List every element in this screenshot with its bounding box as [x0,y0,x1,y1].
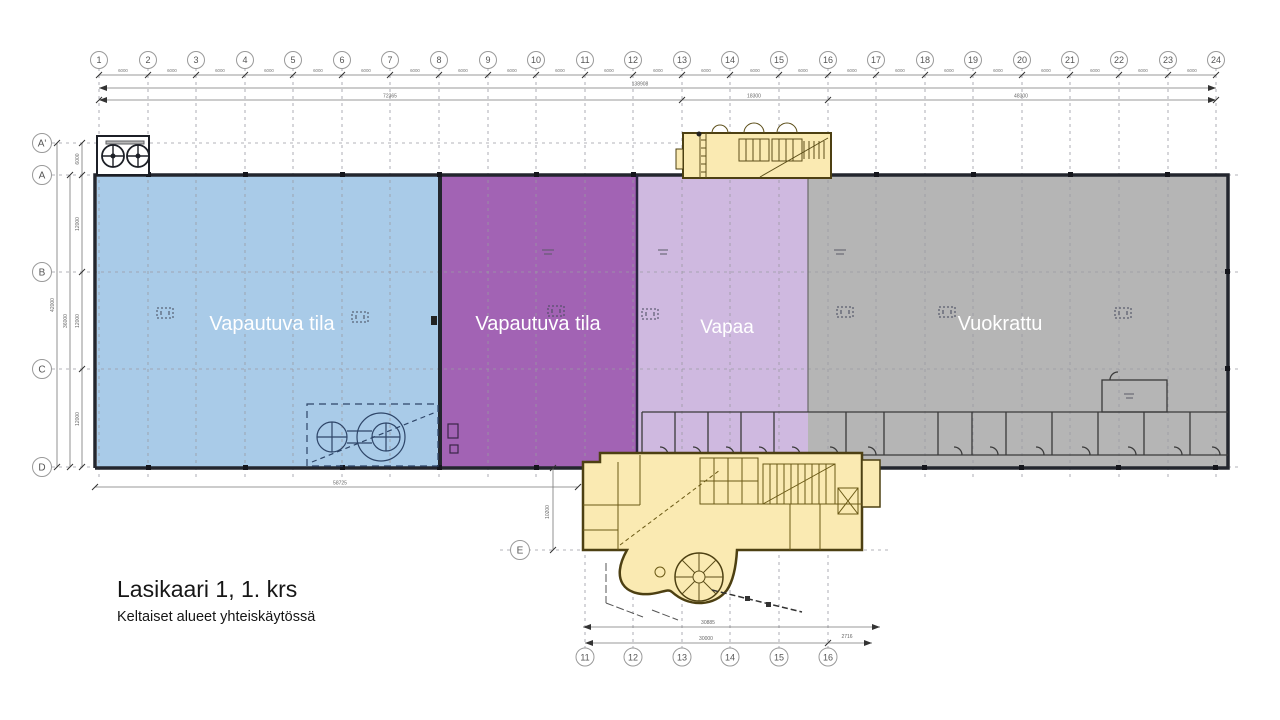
page-subtitle: Keltaiset alueet yhteiskäytössä [117,609,316,625]
dim-aprime-a: 6000 [75,153,81,164]
bay-dim: 6000 [1187,68,1197,73]
dim-bottom-left: 58725 [333,481,347,487]
bay-dim: 6000 [458,68,468,73]
grid-col: 2 [145,55,150,65]
grid-col-bottom: 15 [774,653,784,663]
label-free: Vapaa [700,317,754,338]
dim-entrance-grid: 30000 [699,636,713,642]
mid-total-dim: 18300 [747,94,761,100]
reference-dot [697,132,702,137]
bay-dim: 6000 [653,68,663,73]
grid-col: 19 [968,55,978,65]
dim-b-c: 12000 [75,314,81,328]
grid-row: B [39,268,46,279]
bay-dim: 6000 [847,68,857,73]
bay-dim: 6000 [1041,68,1051,73]
door-mark [431,316,437,325]
bay-dim: 6000 [118,68,128,73]
bay-dim: 6000 [750,68,760,73]
grid-col: 12 [628,55,638,65]
upper-common-building [676,123,831,178]
dim-c-d: 12000 [75,412,81,426]
bay-dim: 6000 [895,68,905,73]
grid-col-bottom: 12 [628,653,638,663]
grid-col: 22 [1114,55,1124,65]
bay-dim: 6000 [555,68,565,73]
grid-col: 17 [871,55,881,65]
grid-bubbles-top: 1 2 3 4 5 6 7 8 9 10 11 12 13 14 15 16 1… [91,52,1225,69]
page-title: Lasikaari 1, 1. krs [117,576,297,602]
grid-col: 20 [1017,55,1027,65]
grid-col: 11 [580,55,589,65]
grid-col: 15 [774,55,784,65]
dim-entrance-extra: 2716 [841,634,852,640]
grid-col: 21 [1065,55,1075,65]
grid-col: 16 [823,55,833,65]
grid-col: 4 [242,55,247,65]
bay-dim: 6000 [604,68,614,73]
bay-dim: 6000 [313,68,323,73]
grid-col: 10 [531,55,541,65]
grid-bubbles-bottom: 11 12 13 14 15 16 [576,648,837,666]
bay-dim: 6000 [167,68,177,73]
grid-col-bottom: 13 [677,653,687,663]
bay-dim: 6000 [361,68,371,73]
bay-dim: 6000 [993,68,1003,73]
grid-row: D [38,463,45,474]
grid-row: A' [38,139,47,150]
grid-col: 9 [485,55,490,65]
bay-dim: 6000 [264,68,274,73]
total-width-dim: 138908 [632,82,649,88]
bay-dim: 6000 [507,68,517,73]
grid-col: 24 [1211,55,1221,65]
dim-a-b: 12000 [75,217,81,231]
grid-col: 3 [193,55,198,65]
grid-col: 1 [96,55,101,65]
spiral-stair [675,553,723,601]
dim-a-d: 36000 [63,314,69,328]
grid-col: 18 [920,55,930,65]
title-block: Lasikaari 1, 1. krs Keltaiset alueet yht… [117,576,316,625]
bay-dim: 6000 [701,68,711,73]
label-releasing-purple: Vapautuva tila [475,313,601,335]
grid-row: C [38,365,45,376]
ventilation-room [97,136,149,175]
grid-col: 23 [1163,55,1173,65]
grid-col-bottom: 16 [823,653,833,663]
dim-entrance-width: 30885 [701,620,715,626]
floorplan-page: 6000 6000 6000 6000 6000 6000 6000 6000 … [0,0,1280,720]
right-total-dim: 48300 [1014,94,1028,100]
grid-row: E [517,546,524,557]
bay-dim: 6000 [215,68,225,73]
grid-col: 14 [725,55,735,65]
grid-col-bottom: 11 [580,653,589,663]
grid-col: 5 [290,55,295,65]
bay-dimension-labels: 6000 6000 6000 6000 6000 6000 6000 6000 … [118,68,1197,73]
grid-col: 6 [339,55,344,65]
dim-d-e: 10200 [545,505,551,519]
grid-row: A [39,171,46,182]
grid-col: 8 [436,55,441,65]
bay-dim: 6000 [944,68,954,73]
floorplan-drawing: 6000 6000 6000 6000 6000 6000 6000 6000 … [0,0,1280,720]
grid-col: 13 [677,55,687,65]
left-total-dim: 72365 [383,94,397,100]
lower-common-building [583,453,880,620]
area-free-lavender [637,175,808,455]
grid-col: 7 [387,55,392,65]
bay-dim: 6000 [1090,68,1100,73]
entrance-appendix [862,460,880,507]
bay-dim: 6000 [410,68,420,73]
label-rented: Vuokrattu [958,313,1043,335]
bay-dim: 6000 [798,68,808,73]
bay-dim: 6000 [1138,68,1148,73]
label-releasing-blue: Vapautuva tila [209,313,335,335]
dim-overall-depth: 42000 [50,298,56,312]
grid-col-bottom: 14 [725,653,735,663]
